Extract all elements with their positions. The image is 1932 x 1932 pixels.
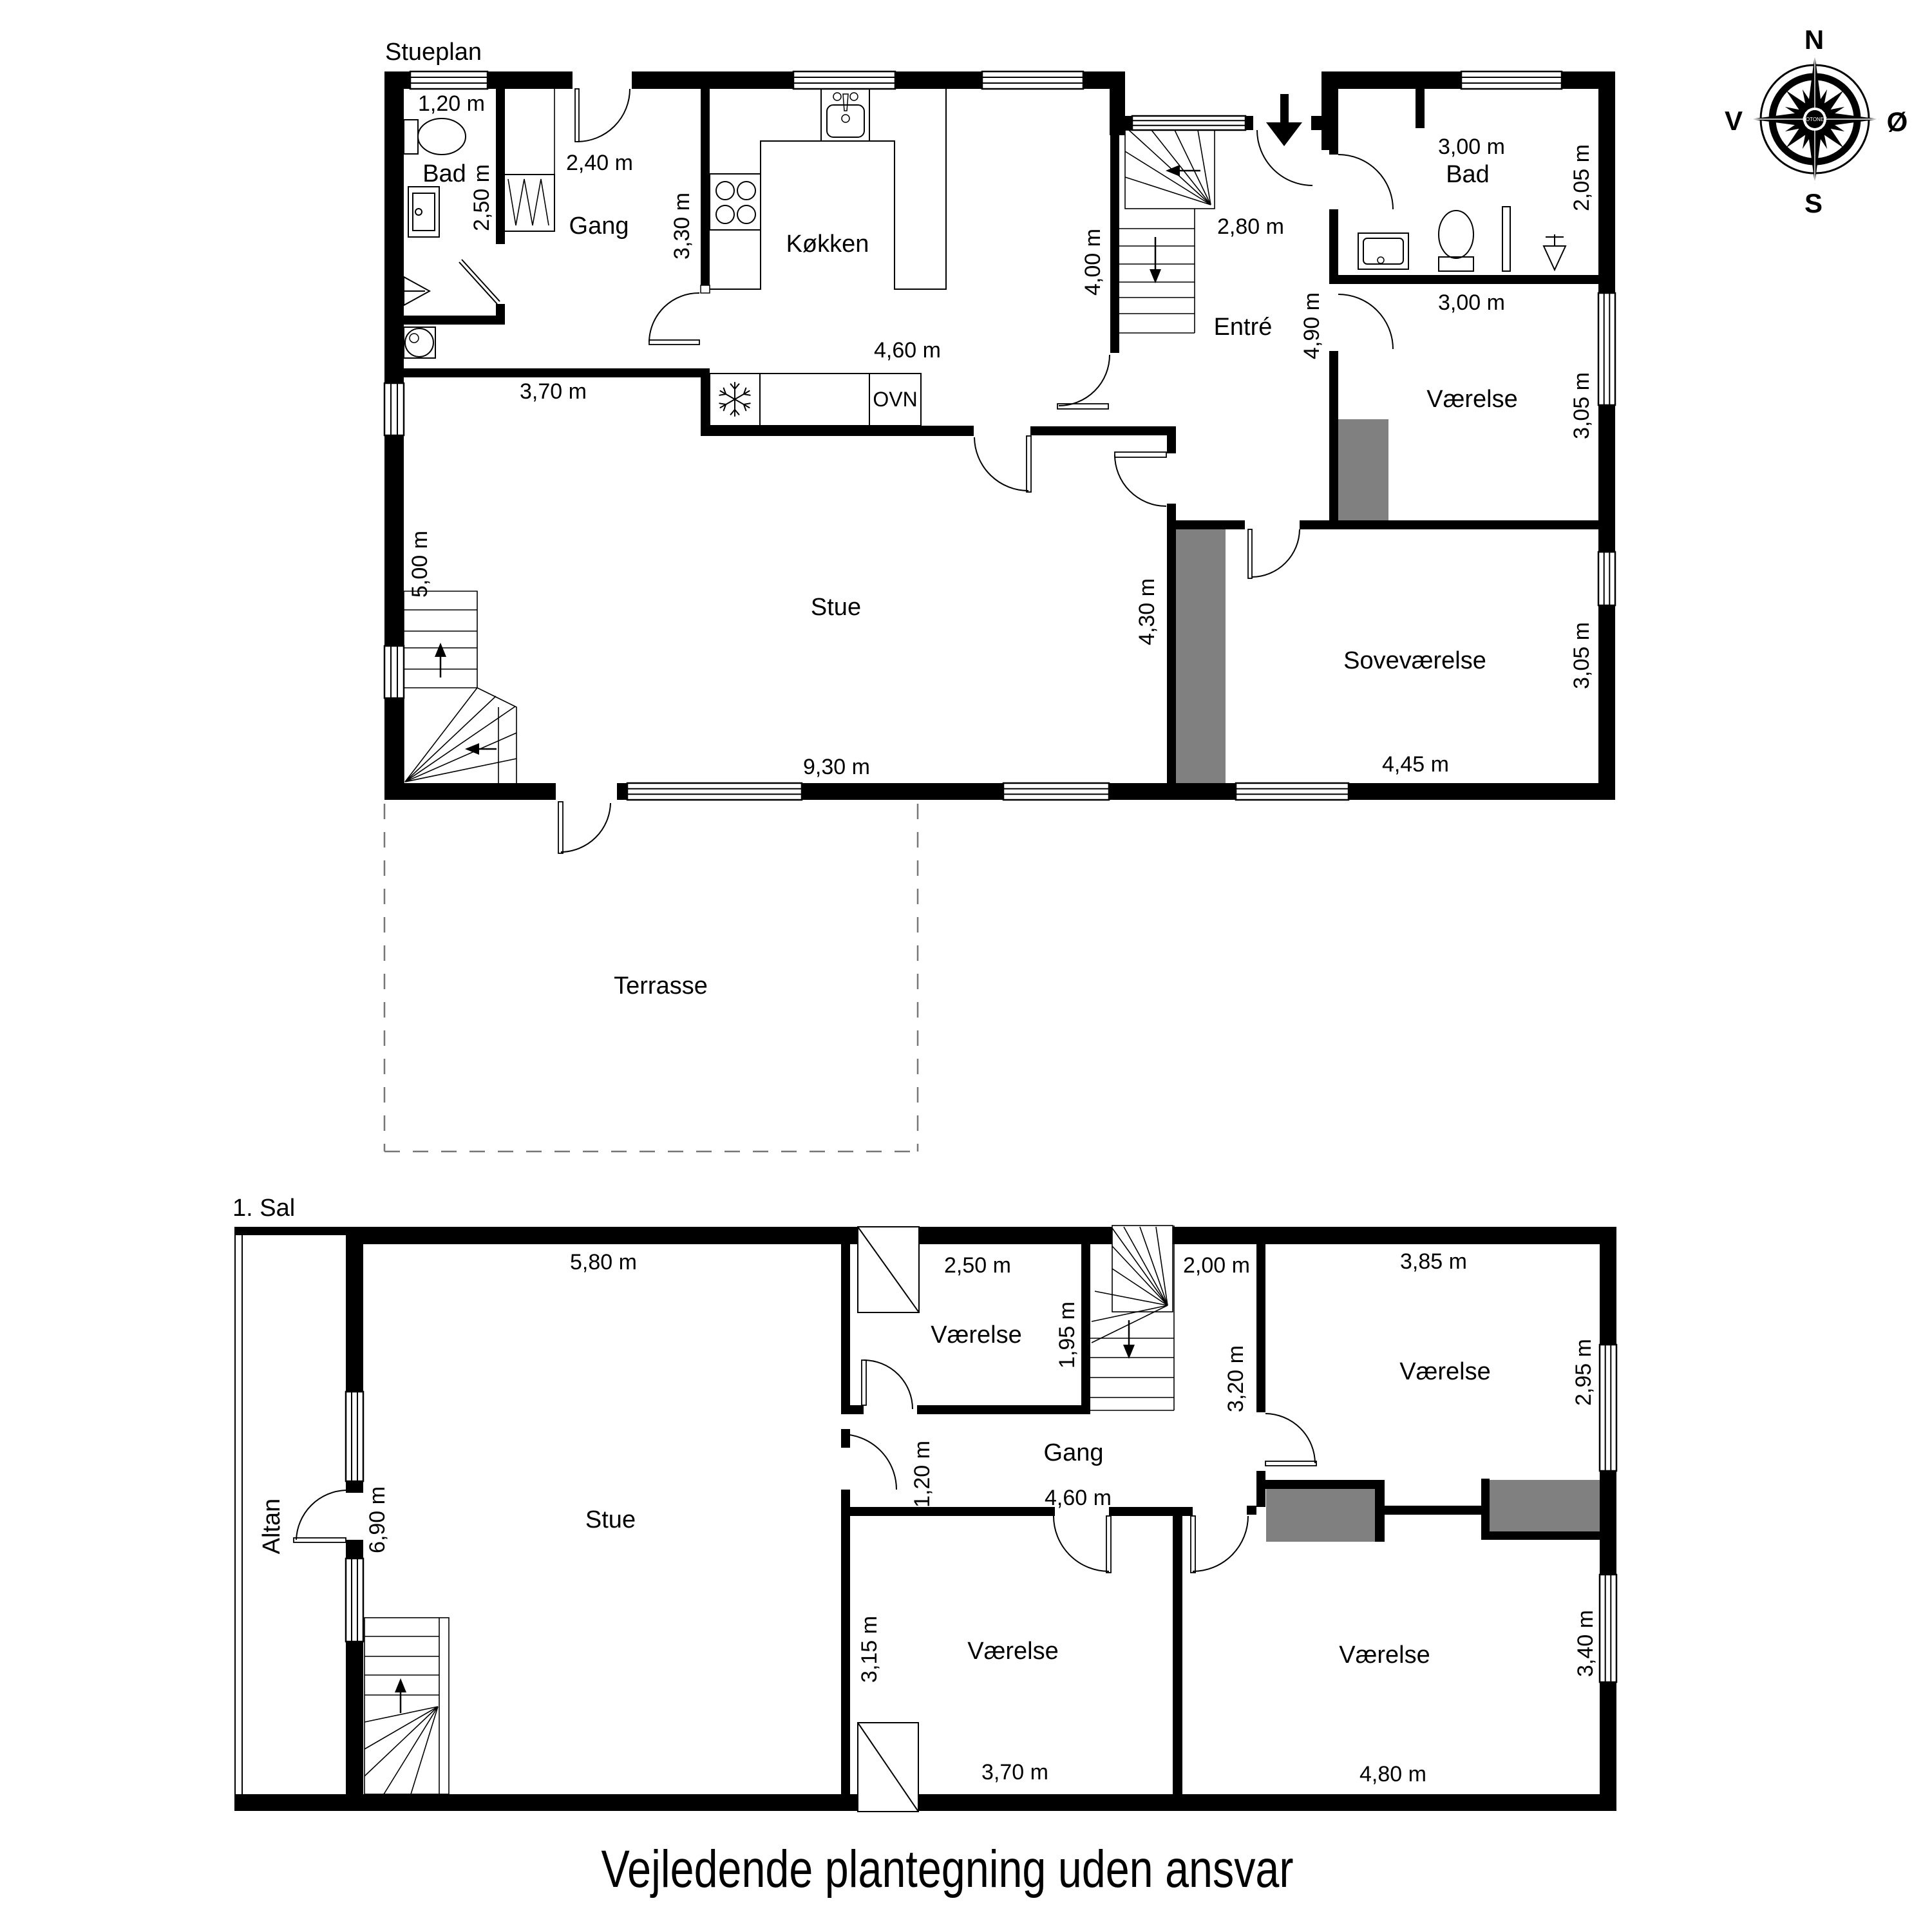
svg-text:2,00 m: 2,00 m [1183,1253,1250,1278]
svg-text:2,80 m: 2,80 m [1217,214,1284,239]
svg-text:9,30 m: 9,30 m [803,755,870,779]
svg-text:Soveværelse: Soveværelse [1343,647,1486,674]
svg-text:2,05 m: 2,05 m [1569,144,1594,211]
svg-text:4,90 m: 4,90 m [1300,292,1324,359]
svg-text:4,00 m: 4,00 m [1081,229,1105,296]
svg-text:N: N [1804,24,1824,55]
svg-text:Stue: Stue [585,1506,636,1533]
svg-text:Værelse: Værelse [931,1321,1022,1349]
svg-text:4,80 m: 4,80 m [1359,1762,1426,1786]
svg-text:2,40 m: 2,40 m [566,151,633,175]
svg-text:4,60 m: 4,60 m [1045,1486,1112,1510]
svg-text:3,05 m: 3,05 m [1569,372,1594,439]
svg-text:Terrasse: Terrasse [614,972,708,999]
svg-text:OVN: OVN [873,388,917,411]
svg-text:3,85 m: 3,85 m [1400,1249,1467,1274]
svg-text:1. Sal: 1. Sal [232,1195,295,1222]
svg-text:V: V [1725,106,1743,136]
svg-text:S: S [1804,188,1823,218]
svg-text:FOTONET: FOTONET [1803,117,1827,122]
svg-text:2,50 m: 2,50 m [469,164,494,231]
svg-text:Gang: Gang [569,213,629,240]
svg-text:1,20 m: 1,20 m [418,91,485,116]
svg-text:Værelse: Værelse [1339,1642,1430,1669]
svg-text:Køkken: Køkken [786,231,869,258]
svg-text:Altan: Altan [258,1499,285,1555]
svg-text:Stue: Stue [811,594,861,621]
svg-text:4,45 m: 4,45 m [1382,752,1449,777]
svg-text:Værelse: Værelse [967,1638,1059,1665]
svg-text:Entré: Entré [1214,314,1273,341]
svg-text:3,20 m: 3,20 m [1224,1345,1248,1412]
svg-text:6,90 m: 6,90 m [365,1486,390,1553]
svg-text:2,50 m: 2,50 m [944,1253,1011,1278]
svg-text:5,80 m: 5,80 m [570,1250,637,1274]
svg-text:3,00 m: 3,00 m [1438,135,1505,159]
svg-text:Værelse: Værelse [1426,386,1518,413]
svg-text:4,30 m: 4,30 m [1135,578,1159,645]
svg-text:3,70 m: 3,70 m [981,1760,1048,1785]
svg-text:Bad: Bad [1446,161,1490,188]
svg-text:1,20 m: 1,20 m [910,1441,934,1508]
svg-text:Vejledende plantegning uden an: Vejledende plantegning uden ansvar [601,1840,1294,1899]
svg-text:Bad: Bad [422,160,466,187]
svg-text:3,70 m: 3,70 m [520,379,587,404]
svg-text:1,95 m: 1,95 m [1055,1302,1079,1368]
svg-text:3,15 m: 3,15 m [857,1616,882,1683]
svg-text:Stueplan: Stueplan [385,39,482,66]
svg-text:3,05 m: 3,05 m [1569,622,1594,689]
svg-text:4,60 m: 4,60 m [874,338,941,363]
svg-text:Gang: Gang [1044,1439,1104,1466]
svg-text:5,00 m: 5,00 m [408,531,432,598]
svg-text:3,30 m: 3,30 m [670,193,694,260]
svg-text:Ø: Ø [1887,107,1908,137]
svg-text:3,00 m: 3,00 m [1438,290,1505,315]
svg-text:3,40 m: 3,40 m [1573,1610,1598,1677]
svg-text:2,95 m: 2,95 m [1571,1339,1596,1406]
svg-text:Værelse: Værelse [1399,1358,1491,1385]
